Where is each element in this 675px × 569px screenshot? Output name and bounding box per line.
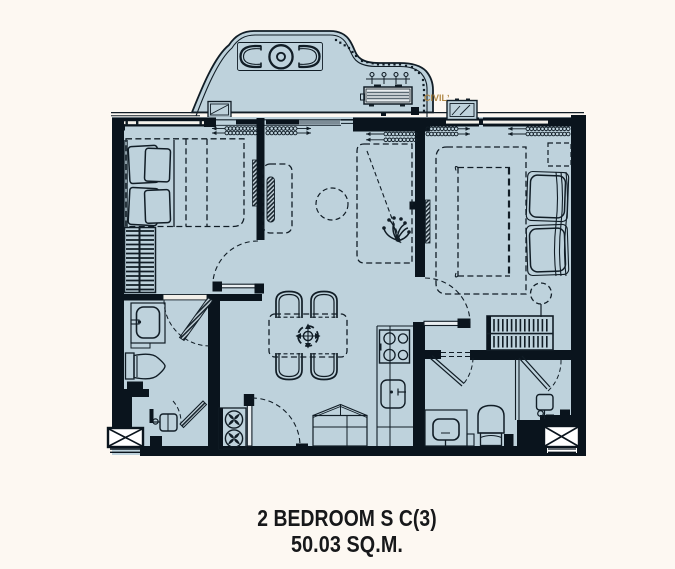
svg-text:CIVILʼ: CIVILʼ — [424, 93, 450, 103]
